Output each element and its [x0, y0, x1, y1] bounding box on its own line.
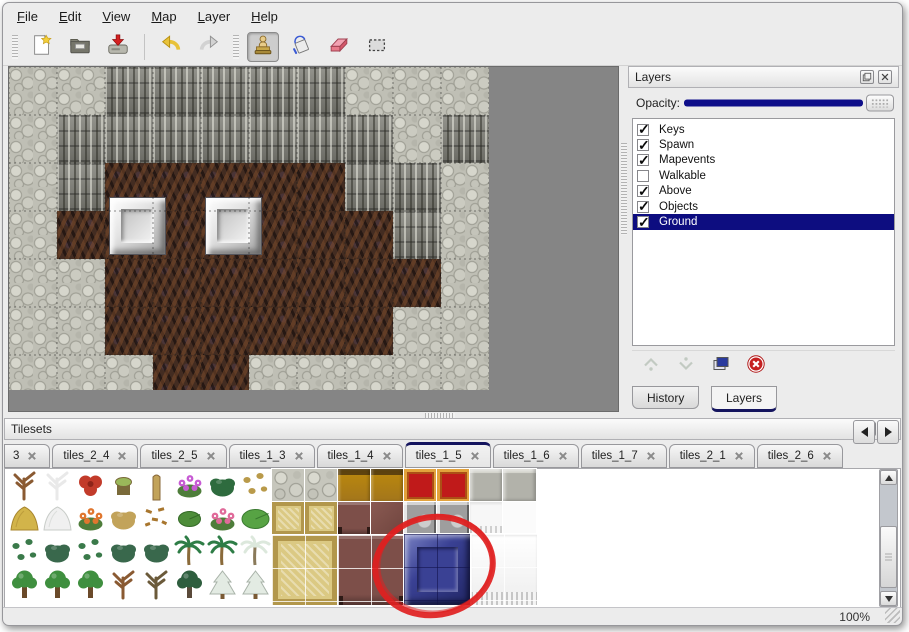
map-tile-light-rock[interactable] [393, 355, 441, 390]
toolbar-drag-handle[interactable] [233, 35, 239, 59]
layer-row-ground[interactable]: Ground [633, 214, 894, 229]
arrow-right-icon [885, 427, 892, 437]
map-tile-light-rock[interactable] [9, 163, 57, 211]
scroll-up-button[interactable] [880, 470, 897, 485]
tile-blue-block[interactable] [404, 534, 471, 605]
select-rect-icon [365, 33, 389, 62]
tile-sprite-trunk[interactable] [140, 469, 173, 502]
tileset-tab-tiles_1_5[interactable]: tiles_1_5 [405, 442, 491, 468]
map-tile-light-rock[interactable] [345, 67, 393, 115]
stamp-tool-icon [251, 33, 275, 62]
delete-icon [746, 354, 766, 379]
eraser-icon [327, 33, 351, 62]
map-tile-light-rock[interactable] [9, 211, 57, 259]
tile-sprite-sprigs[interactable] [8, 535, 41, 568]
tile-sprite-dry-tuft[interactable] [107, 502, 140, 535]
layer-checkbox-ground[interactable] [637, 216, 649, 228]
map-tile-light-rock[interactable] [57, 67, 105, 115]
close-tab-icon[interactable] [822, 451, 832, 461]
tile-white-plain[interactable] [503, 502, 536, 535]
toolbar-drag-handle[interactable] [12, 35, 18, 59]
map-tile-light-rock[interactable] [393, 67, 441, 115]
tile-sprite-green-tree[interactable] [74, 568, 107, 601]
tile-red-carpet[interactable] [437, 469, 470, 502]
layer-checkbox-objects[interactable] [637, 201, 649, 213]
tile-sprite-bush[interactable] [107, 535, 140, 568]
map-tile-light-rock[interactable] [105, 355, 153, 390]
layer-row-spawn[interactable]: Spawn [633, 137, 894, 152]
map-tile-cliff-wall[interactable] [393, 163, 441, 211]
tile-gold-carpet[interactable] [305, 502, 338, 535]
delete-layer-button[interactable] [743, 355, 769, 379]
tile-cobble[interactable] [305, 469, 338, 502]
duplicate-layer-button[interactable] [708, 355, 734, 379]
tile-sprite-fern[interactable] [206, 469, 239, 502]
close-tab-icon[interactable] [117, 451, 127, 461]
layer-label: Walkable [659, 170, 706, 182]
tile-sprite-snow-tree[interactable] [41, 469, 74, 502]
eraser-button[interactable] [323, 32, 355, 62]
layer-row-keys[interactable]: Keys [633, 122, 894, 137]
tile-sprite-green-tree[interactable] [41, 568, 74, 601]
tile-sprite-snow-palm[interactable] [239, 535, 272, 568]
tileset-tab-3[interactable]: 3 [4, 444, 50, 468]
close-tab-icon[interactable] [206, 451, 216, 461]
tile-gold-carpet-big[interactable] [272, 535, 338, 605]
map-tile-cave-floor[interactable] [201, 259, 249, 307]
map-tile-cliff-wall[interactable] [393, 211, 441, 259]
map-tile-cave-floor[interactable] [297, 259, 345, 307]
chevron-down-icon [676, 354, 696, 379]
layers-panel-titlebar: Layers [628, 66, 899, 88]
lower-layer-button[interactable] [673, 355, 699, 379]
tile-red-carpet[interactable] [404, 469, 437, 502]
tileset-tab-label: tiles_2_1 [680, 450, 726, 462]
layer-label: Above [659, 185, 692, 197]
undo-button[interactable] [155, 32, 187, 62]
layer-checkbox-spawn[interactable] [637, 139, 649, 151]
tile-sprite-pink-flowers[interactable] [206, 502, 239, 535]
fill-bucket-icon [289, 33, 313, 62]
tile-sprite-lily-pad-large[interactable] [239, 502, 272, 535]
map-tile-cave-floor[interactable] [57, 211, 105, 259]
arrow-down-icon [885, 596, 893, 602]
chevron-up-icon [641, 354, 661, 379]
map-tile-light-rock[interactable] [393, 307, 441, 355]
map-tile-light-rock[interactable] [441, 355, 489, 390]
map-tile-cave-floor[interactable] [153, 307, 201, 355]
map-tile-light-rock[interactable] [441, 163, 489, 211]
tab-layers[interactable]: Layers [711, 386, 777, 412]
layer-checkbox-mapevents[interactable] [637, 154, 649, 166]
tile-silver-struct[interactable] [437, 502, 470, 535]
menu-item-help[interactable]: Help [251, 9, 278, 24]
map-tile-cave-floor[interactable] [153, 355, 201, 390]
map-object-silver-block[interactable] [109, 197, 166, 255]
zoom-level: 100% [839, 610, 870, 624]
save-button[interactable] [102, 32, 134, 62]
scrollbar-thumb[interactable] [880, 526, 897, 588]
tilesets-panel: Tilesets 3tiles_2_4tiles_2_5tiles_1_3til… [4, 418, 901, 614]
layer-checkbox-above[interactable] [637, 185, 649, 197]
layer-row-walkable[interactable]: Walkable [633, 168, 894, 183]
close-tab-icon[interactable] [734, 451, 744, 461]
opacity-label: Opacity: [636, 96, 680, 110]
app-window: FileEditViewMapLayerHelp Layers Opacity:… [2, 2, 903, 626]
tileset-tab-bar: 3tiles_2_4tiles_2_5tiles_1_3tiles_1_4til… [4, 442, 901, 468]
tileset-tab-label: tiles_2_6 [768, 450, 814, 462]
tileset-content[interactable] [4, 468, 901, 608]
tilesets-panel-titlebar: Tilesets [4, 418, 901, 440]
opacity-slider-handle[interactable] [866, 95, 894, 112]
tileset-scrollbar[interactable] [879, 469, 898, 607]
status-bar: 100% [3, 607, 902, 625]
redo-icon [197, 33, 221, 62]
tileset-tab-tiles_2_1[interactable]: tiles_2_1 [669, 444, 755, 468]
map-tile-light-rock[interactable] [393, 115, 441, 163]
map-tile-cave-floor[interactable] [153, 259, 201, 307]
tile-sprite-purple-flowers[interactable] [173, 469, 206, 502]
tile-sprite-dead-tree[interactable] [140, 568, 173, 601]
fill-button[interactable] [285, 32, 317, 62]
map-tile-light-rock[interactable] [441, 211, 489, 259]
tab-history[interactable]: History [632, 386, 699, 409]
tileset-tab-tiles_2_5[interactable]: tiles_2_5 [140, 444, 226, 468]
map-tile-cliff-wall[interactable] [441, 115, 489, 163]
map-tile-light-rock[interactable] [9, 355, 57, 390]
tile-sprite-bush[interactable] [41, 535, 74, 568]
map-tile-light-rock[interactable] [441, 259, 489, 307]
map-tile-cave-floor[interactable] [345, 211, 393, 259]
close-tab-icon[interactable] [646, 451, 656, 461]
tileset-tab-label: tiles_2_5 [151, 450, 197, 462]
toolbar [3, 29, 902, 66]
tileset-tab-label: tiles_1_4 [328, 450, 374, 462]
map-tile-cliff-wall[interactable] [249, 115, 297, 163]
map-tile-light-rock[interactable] [441, 307, 489, 355]
tile-sprite-palm[interactable] [173, 535, 206, 568]
opacity-slider-track[interactable] [684, 100, 863, 107]
map-tile-cliff-wall[interactable] [201, 67, 249, 115]
copy-icon [711, 354, 731, 379]
layer-row-above[interactable]: Above [633, 184, 894, 199]
new-file-icon [30, 33, 54, 62]
map-tile-cave-floor[interactable] [393, 259, 441, 307]
layer-row-mapevents[interactable]: Mapevents [633, 153, 894, 168]
close-tab-icon[interactable] [558, 451, 568, 461]
tileset-tab-tiles_1_3[interactable]: tiles_1_3 [229, 444, 315, 468]
tile-sprite-snow-pine[interactable] [206, 568, 239, 601]
tile-sprite-leaves[interactable] [140, 502, 173, 535]
layer-row-objects[interactable]: Objects [633, 199, 894, 214]
menu-bar: FileEditViewMapLayerHelp [3, 3, 902, 29]
map-tile-light-rock[interactable] [57, 307, 105, 355]
arrow-up-icon [885, 475, 893, 481]
tile-sprite-dark-tree[interactable] [173, 568, 206, 601]
tilesets-panel-title: Tilesets [11, 422, 52, 436]
close-panel-icon[interactable] [878, 70, 892, 84]
resize-grip[interactable] [885, 608, 900, 623]
tile-wood-top[interactable] [371, 469, 404, 502]
tile-brown-tile[interactable] [371, 502, 404, 535]
tile-sprite-bare-tree[interactable] [107, 568, 140, 601]
vertical-splitter-handle[interactable] [621, 143, 627, 235]
tile-sprite-small-plant[interactable] [239, 469, 272, 502]
new-button[interactable] [26, 32, 58, 62]
tile-sprite-red-bloom[interactable] [74, 469, 107, 502]
tile-sprite-bush[interactable] [140, 535, 173, 568]
layers-panel-title: Layers [635, 70, 671, 84]
tile-silver-struct[interactable] [404, 502, 437, 535]
arrow-left-icon [861, 427, 868, 437]
map-tile-cave-floor[interactable] [201, 307, 249, 355]
tile-stool[interactable] [338, 502, 371, 535]
tile-sprite-lily-pad[interactable] [173, 502, 206, 535]
map-tile-light-rock[interactable] [9, 259, 57, 307]
map-tile-light-rock[interactable] [57, 259, 105, 307]
tile-sprite-hay-mound[interactable] [8, 502, 41, 535]
map-tile-light-rock[interactable] [57, 355, 105, 390]
menu-item-view[interactable]: View [102, 9, 130, 24]
layers-panel: Layers Opacity: KeysSpawnMapeventsWalkab… [628, 66, 899, 416]
map-tile-light-rock[interactable] [249, 355, 297, 390]
float-panel-icon[interactable] [860, 70, 874, 84]
open-folder-icon [68, 33, 92, 62]
map-tile-cliff-wall[interactable] [153, 115, 201, 163]
map-tile-cliff-wall[interactable] [153, 67, 201, 115]
layer-checkbox-keys[interactable] [637, 124, 649, 136]
raise-layer-button[interactable] [638, 355, 664, 379]
map-tile-light-rock[interactable] [9, 307, 57, 355]
tile-gold-carpet[interactable] [272, 502, 305, 535]
map-tile-cave-floor[interactable] [105, 307, 153, 355]
map-tile-light-rock[interactable] [9, 115, 57, 163]
tileset-tab-label: tiles_1_3 [240, 450, 286, 462]
layers-bottom-tabs: HistoryLayers [630, 386, 897, 414]
menu-item-layer[interactable]: Layer [198, 9, 231, 24]
menu-item-file[interactable]: File [17, 9, 38, 24]
map-tile-cave-floor[interactable] [345, 259, 393, 307]
layer-label: Ground [659, 216, 697, 228]
map-tile-cliff-wall[interactable] [249, 67, 297, 115]
opacity-row: Opacity: [630, 92, 897, 114]
layer-list[interactable]: KeysSpawnMapeventsWalkableAboveObjectsGr… [632, 118, 895, 346]
layer-label: Objects [659, 201, 698, 213]
tile-wood-top[interactable] [338, 469, 371, 502]
map-tile-cave-floor[interactable] [249, 259, 297, 307]
map-tile-cliff-wall[interactable] [345, 163, 393, 211]
tile-gray-tile[interactable] [503, 469, 536, 502]
tile-white-fringe[interactable] [470, 502, 503, 535]
tileset-tab-tiles_1_6[interactable]: tiles_1_6 [493, 444, 579, 468]
map-viewport[interactable] [8, 66, 619, 412]
tile-sprite-green-tree[interactable] [8, 568, 41, 601]
tile-sprite-sprigs[interactable] [74, 535, 107, 568]
toolbar-separator [144, 34, 145, 60]
tile-sprite-stump[interactable] [107, 469, 140, 502]
open-button[interactable] [64, 32, 96, 62]
tab-scroll-left-button[interactable] [853, 420, 875, 444]
map-tile-cliff-wall[interactable] [201, 115, 249, 163]
map-tile-cave-floor[interactable] [249, 307, 297, 355]
tileset-tab-tiles_1_7[interactable]: tiles_1_7 [581, 444, 667, 468]
menu-item-edit[interactable]: Edit [59, 9, 81, 24]
close-tab-icon[interactable] [294, 451, 304, 461]
map-tile-cave-floor[interactable] [297, 307, 345, 355]
tileset-tab-tiles_1_4[interactable]: tiles_1_4 [317, 444, 403, 468]
map-canvas[interactable] [9, 67, 489, 390]
close-tab-icon[interactable] [470, 451, 480, 461]
tab-scroll-right-button[interactable] [877, 420, 899, 444]
tileset-tab-label: tiles_1_7 [592, 450, 638, 462]
map-tile-cave-floor[interactable] [201, 355, 249, 390]
close-tab-icon[interactable] [27, 451, 37, 461]
map-tile-cave-floor[interactable] [297, 163, 345, 211]
undo-icon [159, 33, 183, 62]
tileset-tab-tiles_2_4[interactable]: tiles_2_4 [52, 444, 138, 468]
map-tile-light-rock[interactable] [297, 355, 345, 390]
stamp-button[interactable] [247, 32, 279, 62]
layer-label: Keys [659, 124, 685, 136]
map-object-silver-block[interactable] [205, 197, 262, 255]
map-tile-cliff-wall[interactable] [105, 115, 153, 163]
map-tile-cliff-wall[interactable] [57, 163, 105, 211]
tileset-tab-label: tiles_1_5 [416, 450, 462, 462]
select-button[interactable] [361, 32, 393, 62]
map-tile-cave-floor[interactable] [105, 259, 153, 307]
tileset-tab-label: tiles_1_6 [504, 450, 550, 462]
map-tile-cliff-wall[interactable] [105, 67, 153, 115]
menu-item-map[interactable]: Map [151, 9, 176, 24]
map-tile-light-rock[interactable] [441, 67, 489, 115]
map-tile-cave-floor[interactable] [297, 211, 345, 259]
scroll-down-button[interactable] [880, 591, 897, 606]
tile-sprite-orange-flowers[interactable] [74, 502, 107, 535]
tile-gray-tile[interactable] [470, 469, 503, 502]
layer-label: Mapevents [659, 154, 715, 166]
map-tile-light-rock[interactable] [9, 67, 57, 115]
map-tile-cliff-wall[interactable] [297, 67, 345, 115]
layer-checkbox-walkable[interactable] [637, 170, 649, 182]
tileset-tab-label: 3 [13, 450, 19, 462]
map-tile-cliff-wall[interactable] [297, 115, 345, 163]
map-tile-light-rock[interactable] [345, 355, 393, 390]
tile-sprite-snow-pine[interactable] [239, 568, 272, 601]
redo-button[interactable] [193, 32, 225, 62]
tile-sprite-snow-mound[interactable] [41, 502, 74, 535]
tileset-tab-tiles_2_6[interactable]: tiles_2_6 [757, 444, 843, 468]
tile-brown-big[interactable] [338, 535, 404, 605]
tile-sprite-bare-tree[interactable] [8, 469, 41, 502]
close-tab-icon[interactable] [382, 451, 392, 461]
layer-label: Spawn [659, 139, 694, 151]
map-tile-cave-floor[interactable] [345, 307, 393, 355]
tile-white-curtain[interactable] [471, 534, 537, 605]
layer-actions [632, 350, 895, 382]
save-icon [106, 33, 130, 62]
tileset-tab-label: tiles_2_4 [63, 450, 109, 462]
map-tile-cliff-wall[interactable] [345, 115, 393, 163]
map-tile-cliff-wall[interactable] [57, 115, 105, 163]
tile-cobble[interactable] [272, 469, 305, 502]
tile-sprite-palm[interactable] [206, 535, 239, 568]
